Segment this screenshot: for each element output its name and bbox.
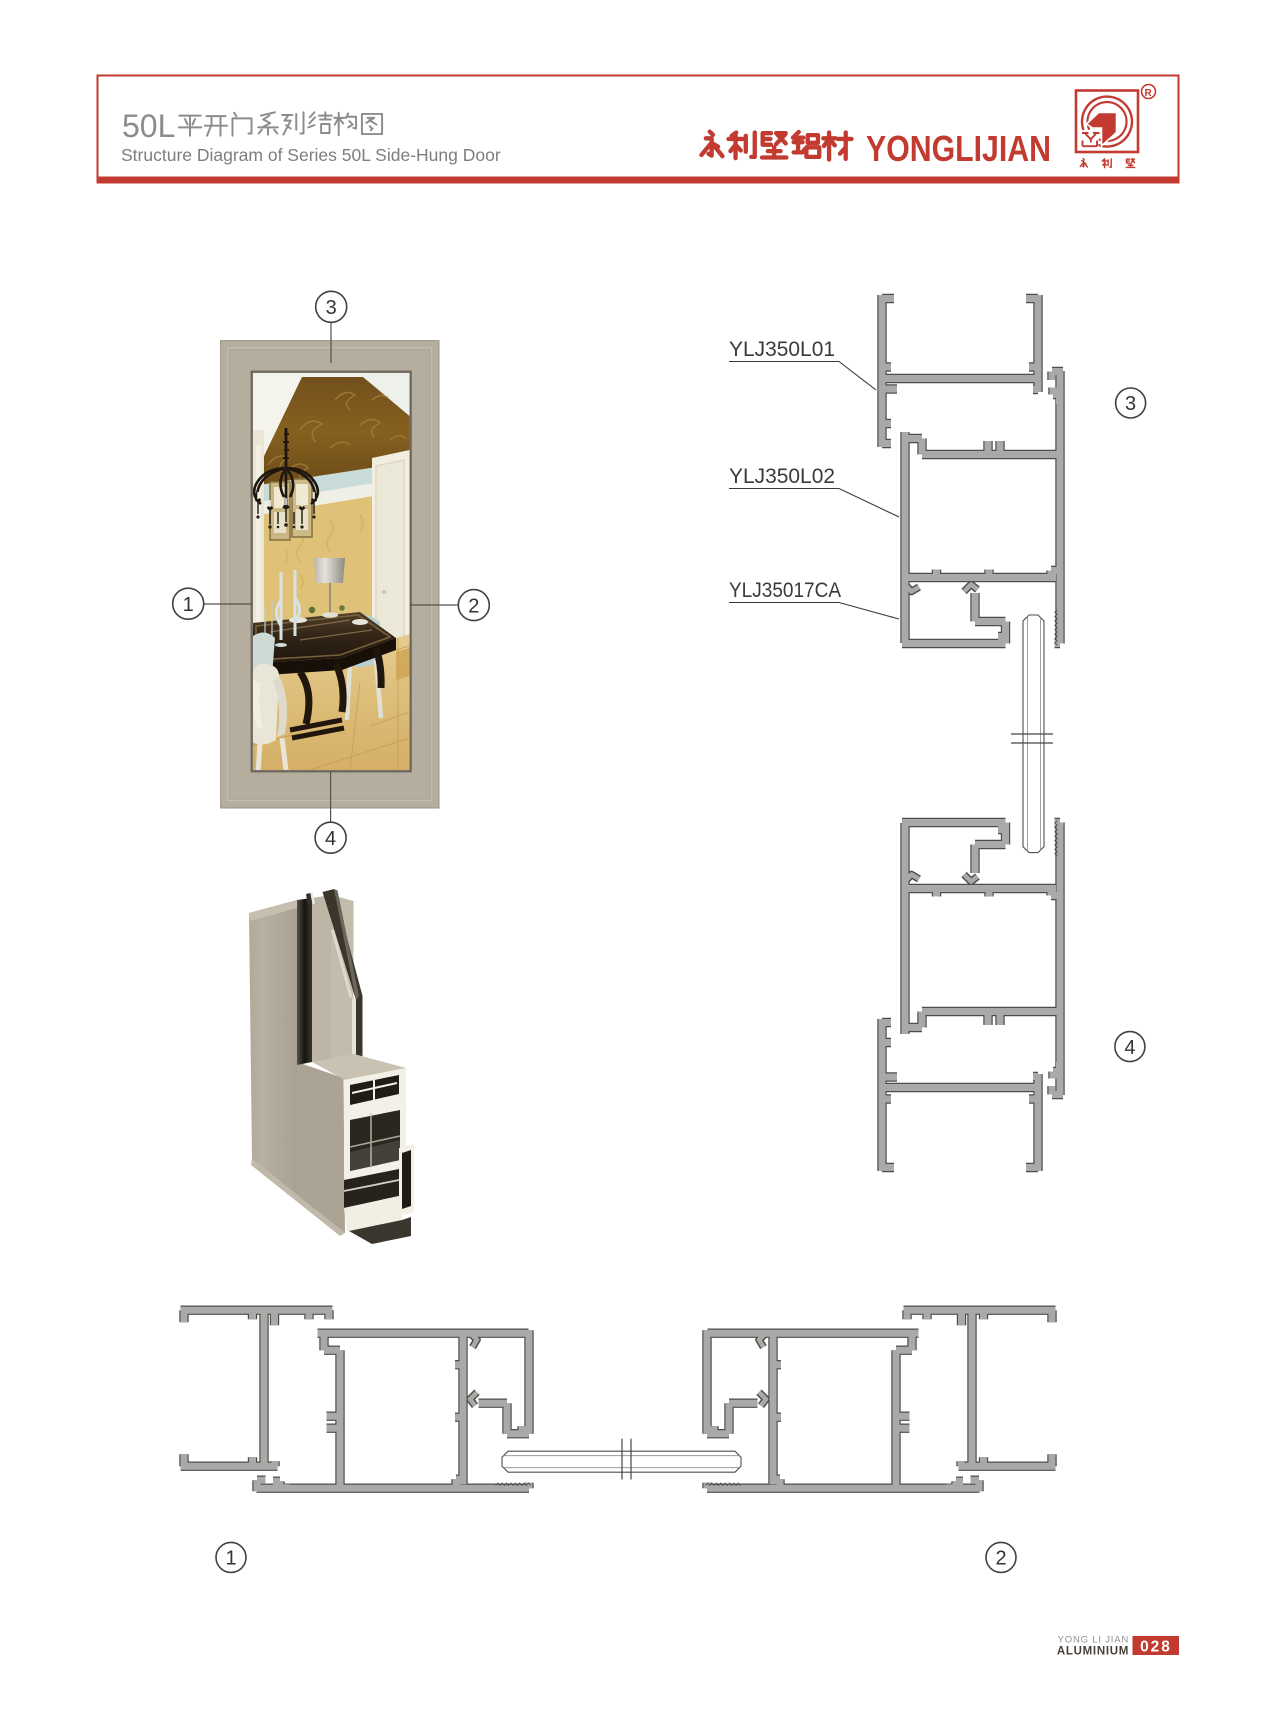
svg-text:3: 3 bbox=[1125, 393, 1136, 415]
svg-text:1: 1 bbox=[225, 1548, 236, 1570]
svg-text:ALUMINIUM: ALUMINIUM bbox=[1057, 1646, 1129, 1658]
svg-text:028: 028 bbox=[1140, 1639, 1172, 1656]
svg-text:1: 1 bbox=[183, 594, 194, 616]
svg-text:2: 2 bbox=[995, 1548, 1006, 1570]
svg-text:2: 2 bbox=[468, 595, 479, 617]
svg-text:4: 4 bbox=[1124, 1037, 1135, 1059]
svg-text:YLJ350L02: YLJ350L02 bbox=[729, 465, 835, 488]
svg-text:50L: 50L bbox=[122, 108, 175, 144]
svg-text:R: R bbox=[1145, 88, 1153, 99]
svg-text:4: 4 bbox=[325, 828, 336, 850]
svg-text:3: 3 bbox=[326, 297, 337, 319]
svg-text:YONGLIJIAN: YONGLIJIAN bbox=[866, 128, 1051, 169]
svg-text:Structure Diagram of Series 50: Structure Diagram of Series 50L Side-Hun… bbox=[121, 145, 501, 165]
svg-text:YONG LI JIAN: YONG LI JIAN bbox=[1058, 1635, 1129, 1646]
svg-text:YLJ350L01: YLJ350L01 bbox=[729, 338, 835, 361]
svg-text:YLJ35017CA: YLJ35017CA bbox=[729, 579, 841, 602]
